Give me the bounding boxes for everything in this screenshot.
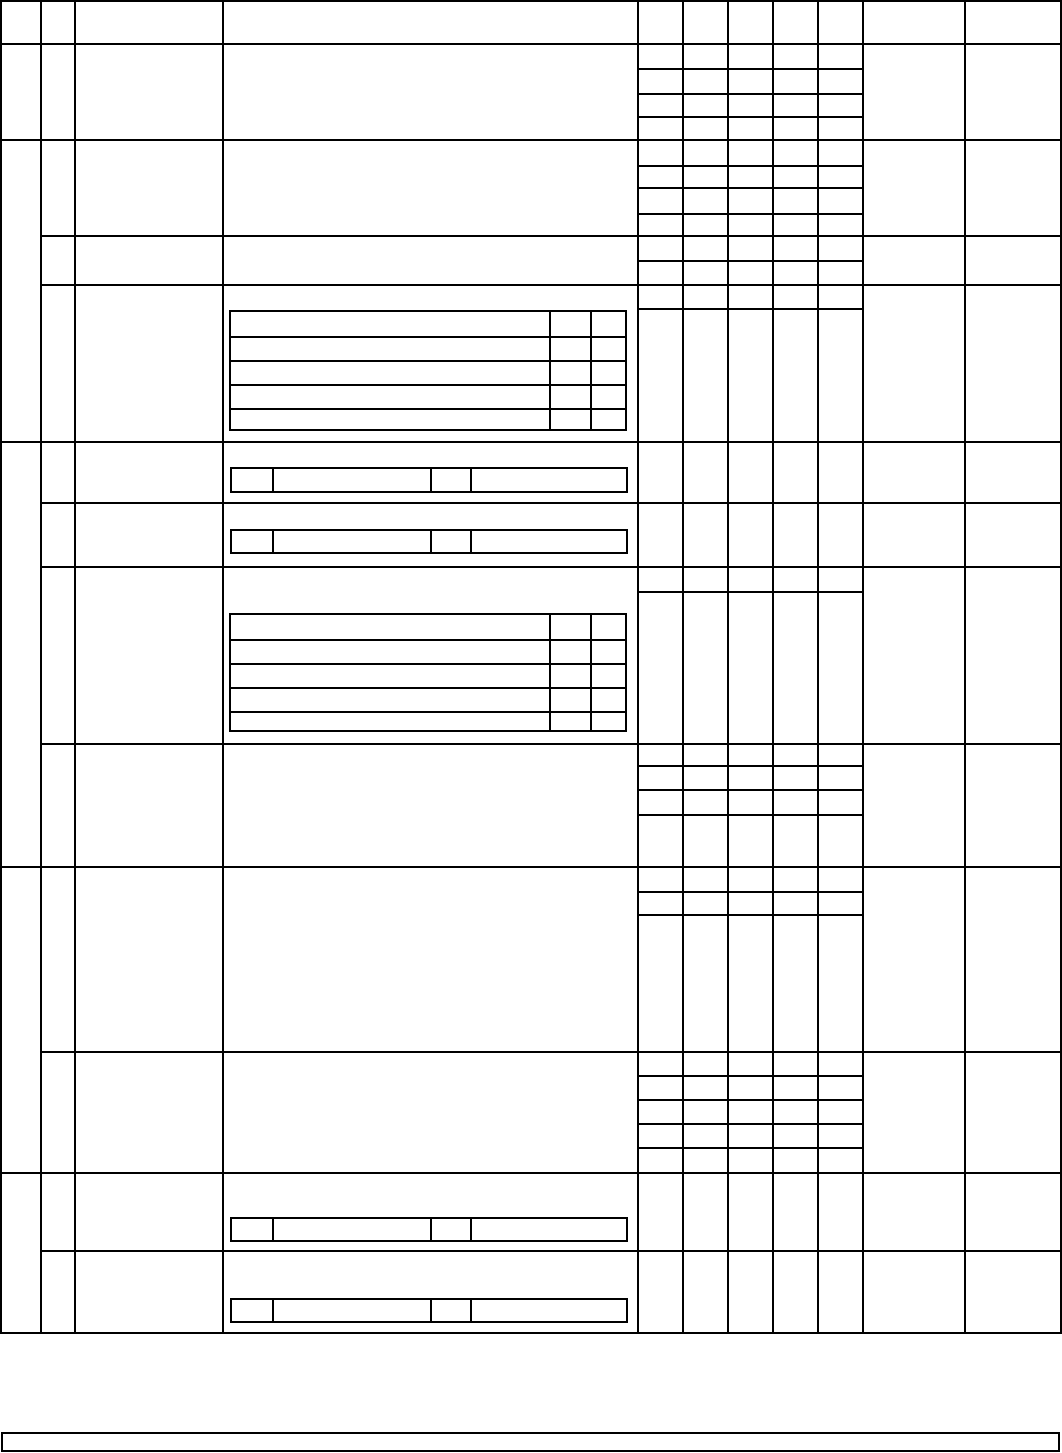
subrow-divider — [637, 1099, 864, 1101]
nested-column-divider — [470, 1219, 472, 1240]
nested-column-divider — [430, 469, 432, 491]
nested-option-row — [230, 1217, 628, 1242]
row-divider — [40, 235, 1062, 237]
page — [0, 0, 1062, 1453]
nested-row-divider — [231, 639, 625, 641]
nested-column-divider — [470, 469, 472, 491]
subrow-divider — [637, 765, 864, 767]
nested-column-divider — [430, 1300, 432, 1321]
subrow-divider — [637, 914, 864, 916]
row-divider — [40, 743, 1062, 745]
section-divider — [0, 1172, 1062, 1174]
nested-row-divider — [231, 687, 625, 689]
section-divider — [0, 866, 1062, 868]
nested-row-divider — [231, 336, 625, 338]
table-top-edge — [0, 0, 1062, 2]
subrow-divider — [637, 260, 864, 262]
nested-row-divider — [231, 384, 625, 386]
row-divider — [40, 1250, 1062, 1252]
subrow-divider — [637, 591, 864, 593]
nested-column-divider — [272, 531, 274, 552]
nested-column-divider — [272, 1300, 274, 1321]
nested-column-divider — [590, 615, 592, 730]
subrow-divider — [637, 1075, 864, 1077]
column-divider — [222, 0, 224, 1334]
column-divider — [74, 0, 76, 1334]
subrow-divider — [637, 213, 864, 215]
main-table — [0, 0, 1062, 1334]
nested-column-divider — [272, 1219, 274, 1240]
subrow-divider — [637, 814, 864, 816]
column-divider — [772, 0, 774, 1334]
subrow-divider — [637, 165, 864, 167]
nested-row-divider — [231, 408, 625, 410]
table-left-edge — [0, 0, 2, 1334]
subrow-divider — [637, 1147, 864, 1149]
nested-column-divider — [549, 615, 551, 730]
section-divider — [0, 139, 1062, 141]
row-divider — [40, 566, 1062, 568]
nested-column-divider — [549, 312, 551, 429]
row-divider — [40, 284, 1062, 286]
column-divider — [862, 0, 864, 1334]
column-divider — [727, 0, 729, 1334]
nested-checklist-table — [229, 613, 627, 732]
nested-column-divider — [430, 531, 432, 552]
column-divider — [682, 0, 684, 1334]
subrow-divider — [637, 1123, 864, 1125]
row-divider — [40, 1051, 1062, 1053]
nested-column-divider — [272, 469, 274, 491]
header-row-divider — [0, 43, 1062, 45]
subrow-divider — [637, 116, 864, 118]
nested-checklist-table — [229, 310, 627, 431]
nested-option-row — [230, 529, 628, 554]
subrow-divider — [637, 789, 864, 791]
nested-row-divider — [231, 711, 625, 713]
footer-bar — [1, 1432, 1060, 1452]
nested-row-divider — [231, 360, 625, 362]
subrow-divider — [637, 93, 864, 95]
nested-column-divider — [430, 1219, 432, 1240]
subrow-divider — [637, 308, 864, 310]
nested-column-divider — [470, 531, 472, 552]
column-divider — [637, 0, 639, 1334]
nested-row-divider — [231, 663, 625, 665]
nested-column-divider — [590, 312, 592, 429]
subrow-divider — [637, 891, 864, 893]
nested-option-row — [230, 1298, 628, 1323]
section-divider — [0, 441, 1062, 443]
column-divider — [817, 0, 819, 1334]
nested-column-divider — [470, 1300, 472, 1321]
subrow-divider — [637, 187, 864, 189]
column-divider — [964, 0, 966, 1334]
column-divider — [40, 0, 42, 1334]
row-divider — [40, 502, 1062, 504]
subrow-divider — [637, 68, 864, 70]
table-bottom-edge — [0, 1332, 1062, 1334]
nested-option-row — [230, 467, 628, 493]
